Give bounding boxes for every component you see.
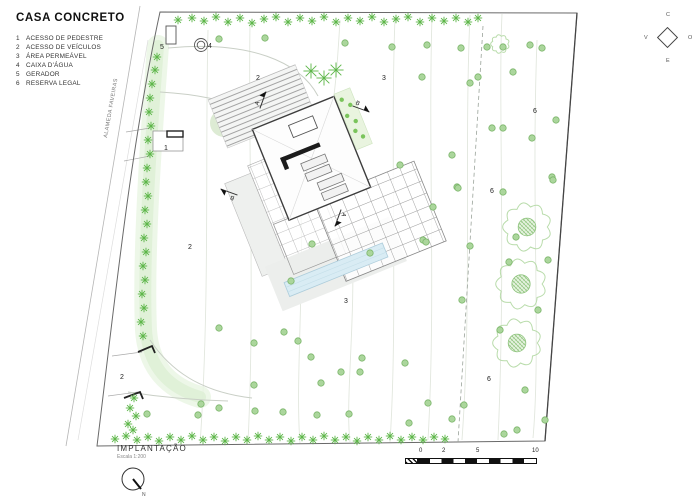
tree-dot-icon bbox=[510, 69, 516, 75]
legend-item-label: ÁREA PERMEÁVEL bbox=[26, 52, 87, 61]
tree-asterisk-icon bbox=[452, 14, 460, 22]
tree-asterisk-icon bbox=[331, 436, 339, 444]
area-label: 2 bbox=[256, 75, 260, 82]
tree-asterisk-icon bbox=[139, 332, 147, 340]
tree-dot-icon bbox=[144, 411, 150, 417]
tree-dot-icon bbox=[459, 297, 465, 303]
area-label: 5 bbox=[160, 44, 164, 51]
tree-asterisk-icon bbox=[308, 17, 316, 25]
tree-dot-icon bbox=[501, 431, 507, 437]
tree-asterisk-icon bbox=[138, 290, 146, 298]
area-label: 2 bbox=[188, 244, 192, 251]
tree-asterisk-icon bbox=[144, 433, 152, 441]
dashed-division-line bbox=[458, 26, 483, 442]
tree-dot-icon bbox=[430, 204, 436, 210]
tree-asterisk-icon bbox=[380, 18, 388, 26]
scale-bar: 02510 bbox=[405, 448, 555, 468]
tree-asterisk-icon bbox=[265, 436, 273, 444]
generator-box bbox=[166, 26, 176, 44]
tree-asterisk-icon bbox=[232, 433, 240, 441]
tree-asterisk-icon bbox=[141, 206, 149, 214]
tree-asterisk-icon bbox=[151, 66, 159, 74]
tree-asterisk-icon bbox=[177, 436, 185, 444]
tree-asterisk-icon bbox=[140, 304, 148, 312]
tree-dot-icon bbox=[513, 234, 519, 240]
tree-dot-icon bbox=[539, 45, 545, 51]
tree-asterisk-icon bbox=[320, 432, 328, 440]
tree-asterisk-icon bbox=[309, 436, 317, 444]
tree-asterisk-icon bbox=[332, 18, 340, 26]
tree-asterisk-icon bbox=[140, 234, 148, 242]
tree-dot-icon bbox=[514, 427, 520, 433]
area-label: 4 bbox=[208, 43, 212, 50]
area-label: 1 bbox=[164, 145, 168, 152]
tree-dot-icon bbox=[280, 409, 286, 415]
tree-asterisk-icon bbox=[142, 178, 150, 186]
tree-asterisk-icon bbox=[296, 14, 304, 22]
tree-dot-icon bbox=[389, 44, 395, 50]
tree-dot-icon bbox=[527, 42, 533, 48]
tree-dot-icon bbox=[550, 177, 556, 183]
tree-asterisk-icon bbox=[416, 18, 424, 26]
tree-asterisk-icon bbox=[221, 437, 229, 445]
tree-dot-icon bbox=[467, 80, 473, 86]
tree-asterisk-icon bbox=[146, 150, 154, 158]
tree-asterisk-icon bbox=[143, 164, 151, 172]
tree-dot-icon bbox=[449, 152, 455, 158]
tree-asterisk-icon bbox=[428, 14, 436, 22]
drawing-scale: Escala 1:200 bbox=[117, 454, 187, 460]
tree-asterisk-icon bbox=[430, 433, 438, 441]
tree-asterisk-icon bbox=[137, 318, 145, 326]
tree-asterisk-icon bbox=[408, 433, 416, 441]
tree-dot-icon bbox=[195, 412, 201, 418]
legend-item-label: ACESSO DE VEÍCULOS bbox=[26, 43, 101, 52]
tree-asterisk-icon bbox=[144, 192, 152, 200]
legend-item-number: 4 bbox=[16, 61, 26, 70]
tree-asterisk-icon bbox=[142, 248, 150, 256]
sheet-title: CASA CONCRETO bbox=[16, 12, 125, 24]
tree-dot-icon bbox=[475, 74, 481, 80]
tree-asterisk-icon bbox=[392, 15, 400, 23]
scale-bar-label: 5 bbox=[476, 448, 479, 454]
tree-asterisk-icon bbox=[284, 18, 292, 26]
tree-asterisk-icon bbox=[404, 13, 412, 21]
scale-bar-label: 0 bbox=[419, 448, 422, 454]
svg-text:N: N bbox=[142, 492, 146, 498]
tree-dot-icon bbox=[419, 74, 425, 80]
tree-dot-icon bbox=[342, 40, 348, 46]
tree-asterisk-icon bbox=[375, 436, 383, 444]
tree-dot-icon bbox=[542, 417, 548, 423]
tree-asterisk-icon bbox=[328, 62, 343, 77]
tree-dot-icon bbox=[553, 117, 559, 123]
legend-item: 3ÁREA PERMEÁVEL bbox=[16, 52, 103, 61]
tree-asterisk-icon bbox=[111, 435, 119, 443]
tree-asterisk-icon bbox=[153, 53, 161, 61]
tree-dot-icon bbox=[500, 189, 506, 195]
compass-diamond-icon bbox=[657, 27, 678, 48]
tree-dot-icon bbox=[500, 44, 506, 50]
tree-asterisk-icon bbox=[147, 122, 155, 130]
tree-asterisk-icon bbox=[236, 14, 244, 22]
tree-asterisk-icon bbox=[166, 433, 174, 441]
tree-dot-icon bbox=[500, 125, 506, 131]
site-plan-drawing: ABBA 54236612362 ALAMEDA FAVEIRAS N bbox=[0, 0, 700, 502]
drawing-name: IMPLANTAÇÃO bbox=[117, 444, 187, 453]
legend-item: 5GERADOR bbox=[16, 70, 103, 79]
tree-asterisk-icon bbox=[133, 436, 141, 444]
tree-asterisk-icon bbox=[143, 220, 151, 228]
tree-flower-icon bbox=[491, 35, 509, 54]
tree-asterisk-icon bbox=[124, 420, 132, 428]
tree-asterisk-icon bbox=[316, 70, 331, 85]
legend-item-number: 5 bbox=[16, 70, 26, 79]
tree-dot-icon bbox=[425, 400, 431, 406]
legend-item: 6RESERVA LEGAL bbox=[16, 79, 103, 88]
tree-asterisk-icon bbox=[397, 436, 405, 444]
tree-asterisk-icon bbox=[474, 14, 482, 22]
tree-asterisk-icon bbox=[132, 412, 140, 420]
area-label: 3 bbox=[344, 298, 348, 305]
tree-dot-icon bbox=[467, 243, 473, 249]
compass-letter-bottom: E bbox=[666, 58, 670, 64]
tree-asterisk-icon bbox=[276, 433, 284, 441]
tree-dot-icon bbox=[318, 380, 324, 386]
legend-item-number: 2 bbox=[16, 43, 26, 52]
tree-dot-icon bbox=[308, 354, 314, 360]
tree-asterisk-icon bbox=[146, 94, 154, 102]
tree-dot-icon bbox=[458, 45, 464, 51]
scale-bar-label: 2 bbox=[442, 448, 445, 454]
tree-dot-icon bbox=[506, 259, 512, 265]
tree-dot-icon bbox=[216, 325, 222, 331]
tree-dot-icon bbox=[252, 408, 258, 414]
tree-asterisk-icon bbox=[320, 13, 328, 21]
legend-item-label: ACESSO DE PEDESTRE bbox=[26, 34, 103, 43]
tree-dot-icon bbox=[216, 36, 222, 42]
tree-asterisk-icon bbox=[139, 262, 147, 270]
tree-dot-icon bbox=[251, 340, 257, 346]
legend-item-number: 3 bbox=[16, 52, 26, 61]
site-plan-sheet: ABBA 54236612362 ALAMEDA FAVEIRAS N CASA… bbox=[0, 0, 700, 502]
tree-dot-icon bbox=[295, 338, 301, 344]
tree-asterisk-icon bbox=[298, 433, 306, 441]
tree-dot-icon bbox=[281, 329, 287, 335]
tree-asterisk-icon bbox=[212, 13, 220, 21]
legend-item: 4CAIXA D'ÁGUA bbox=[16, 61, 103, 70]
legend-item-number: 6 bbox=[16, 79, 26, 88]
legend-item-label: RESERVA LEGAL bbox=[26, 79, 81, 88]
drawing-title-block: IMPLANTAÇÃO Escala 1:200 bbox=[117, 444, 187, 460]
tree-dot-icon bbox=[423, 239, 429, 245]
tree-asterisk-icon bbox=[174, 16, 182, 24]
tree-dot-icon bbox=[338, 369, 344, 375]
tree-asterisk-icon bbox=[130, 394, 138, 402]
legend-item: 1ACESSO DE PEDESTRE bbox=[16, 34, 103, 43]
scale-bar-segments bbox=[417, 458, 537, 464]
scale-bar-label: 10 bbox=[532, 448, 539, 454]
legend-item-label: GERADOR bbox=[26, 70, 60, 79]
tree-asterisk-icon bbox=[272, 13, 280, 21]
tree-dot-icon bbox=[545, 257, 551, 263]
tree-flower-icon bbox=[496, 259, 545, 309]
tree-dot-icon bbox=[484, 44, 490, 50]
tree-asterisk-icon bbox=[464, 18, 472, 26]
tree-dot-icon bbox=[406, 420, 412, 426]
tree-asterisk-icon bbox=[287, 437, 295, 445]
tree-dot-icon bbox=[455, 185, 461, 191]
tree-asterisk-icon bbox=[353, 437, 361, 445]
legend-item-label: CAIXA D'ÁGUA bbox=[26, 61, 73, 70]
street-name-label: ALAMEDA FAVEIRAS bbox=[103, 78, 119, 139]
tree-dot-icon bbox=[367, 250, 373, 256]
tree-asterisk-icon bbox=[188, 432, 196, 440]
tree-asterisk-icon bbox=[440, 17, 448, 25]
tree-asterisk-icon bbox=[243, 436, 251, 444]
tree-dot-icon bbox=[461, 402, 467, 408]
tree-asterisk-icon bbox=[144, 136, 152, 144]
tree-asterisk-icon bbox=[199, 436, 207, 444]
tree-asterisk-icon bbox=[200, 17, 208, 25]
tree-asterisk-icon bbox=[122, 432, 130, 440]
north-arrow: N bbox=[122, 468, 146, 498]
tree-dot-icon bbox=[489, 125, 495, 131]
tree-asterisk-icon bbox=[126, 404, 134, 412]
tree-asterisk-icon bbox=[188, 14, 196, 22]
tree-dot-icon bbox=[216, 405, 222, 411]
tree-dot-icon bbox=[497, 327, 503, 333]
tree-asterisk-icon bbox=[141, 276, 149, 284]
tree-dot-icon bbox=[402, 360, 408, 366]
tree-dot-icon bbox=[288, 278, 294, 284]
tree-dot-icon bbox=[251, 382, 257, 388]
tree-dot-icon bbox=[359, 355, 365, 361]
tree-asterisk-icon bbox=[303, 63, 318, 78]
tree-asterisk-icon bbox=[248, 19, 256, 27]
tree-asterisk-icon bbox=[342, 433, 350, 441]
tree-asterisk-icon bbox=[368, 13, 376, 21]
pedestrian-gate bbox=[153, 131, 183, 151]
tree-dot-icon bbox=[535, 307, 541, 313]
tree-dot-icon bbox=[424, 42, 430, 48]
tree-dot-icon bbox=[522, 387, 528, 393]
tree-asterisk-icon bbox=[145, 108, 153, 116]
tree-dot-icon bbox=[397, 162, 403, 168]
tree-dot-icon bbox=[357, 369, 363, 375]
tree-flower-icon bbox=[503, 203, 551, 251]
tree-asterisk-icon bbox=[254, 432, 262, 440]
tree-flower-icon bbox=[493, 319, 541, 367]
tree-dot-icon bbox=[198, 401, 204, 407]
area-label: 6 bbox=[490, 188, 494, 195]
tree-asterisk-icon bbox=[129, 426, 137, 434]
tree-asterisk-icon bbox=[441, 435, 449, 443]
tree-dot-icon bbox=[449, 416, 455, 422]
area-label: 6 bbox=[533, 108, 537, 115]
tree-asterisk-icon bbox=[224, 18, 232, 26]
tree-dot-icon bbox=[346, 411, 352, 417]
tree-dot-icon bbox=[529, 135, 535, 141]
tree-asterisk-icon bbox=[386, 432, 394, 440]
lot-boundary-right-edge bbox=[545, 13, 577, 441]
tree-dot-icon bbox=[309, 241, 315, 247]
tree-asterisk-icon bbox=[260, 15, 268, 23]
tree-asterisk-icon bbox=[419, 436, 427, 444]
tree-dot-icon bbox=[314, 412, 320, 418]
compass-letter-left: V bbox=[644, 35, 648, 41]
tree-asterisk-icon bbox=[210, 433, 218, 441]
tree-dot-icon bbox=[262, 35, 268, 41]
compass-letter-top: C bbox=[666, 12, 670, 18]
flower-trees bbox=[491, 35, 551, 367]
tree-asterisk-icon bbox=[148, 80, 156, 88]
water-tank-symbol bbox=[195, 39, 208, 52]
compass-letter-right: O bbox=[688, 35, 692, 41]
legend-item: 2ACESSO DE VEÍCULOS bbox=[16, 43, 103, 52]
area-label: 2 bbox=[120, 374, 124, 381]
legend: 1ACESSO DE PEDESTRE2ACESSO DE VEÍCULOS3Á… bbox=[16, 34, 103, 88]
legend-item-number: 1 bbox=[16, 34, 26, 43]
area-label: 3 bbox=[382, 75, 386, 82]
compass-rose: C V O E bbox=[638, 8, 698, 70]
area-label: 6 bbox=[487, 376, 491, 383]
tree-asterisk-icon bbox=[356, 17, 364, 25]
tree-asterisk-icon bbox=[344, 14, 352, 22]
tree-asterisk-icon bbox=[364, 433, 372, 441]
